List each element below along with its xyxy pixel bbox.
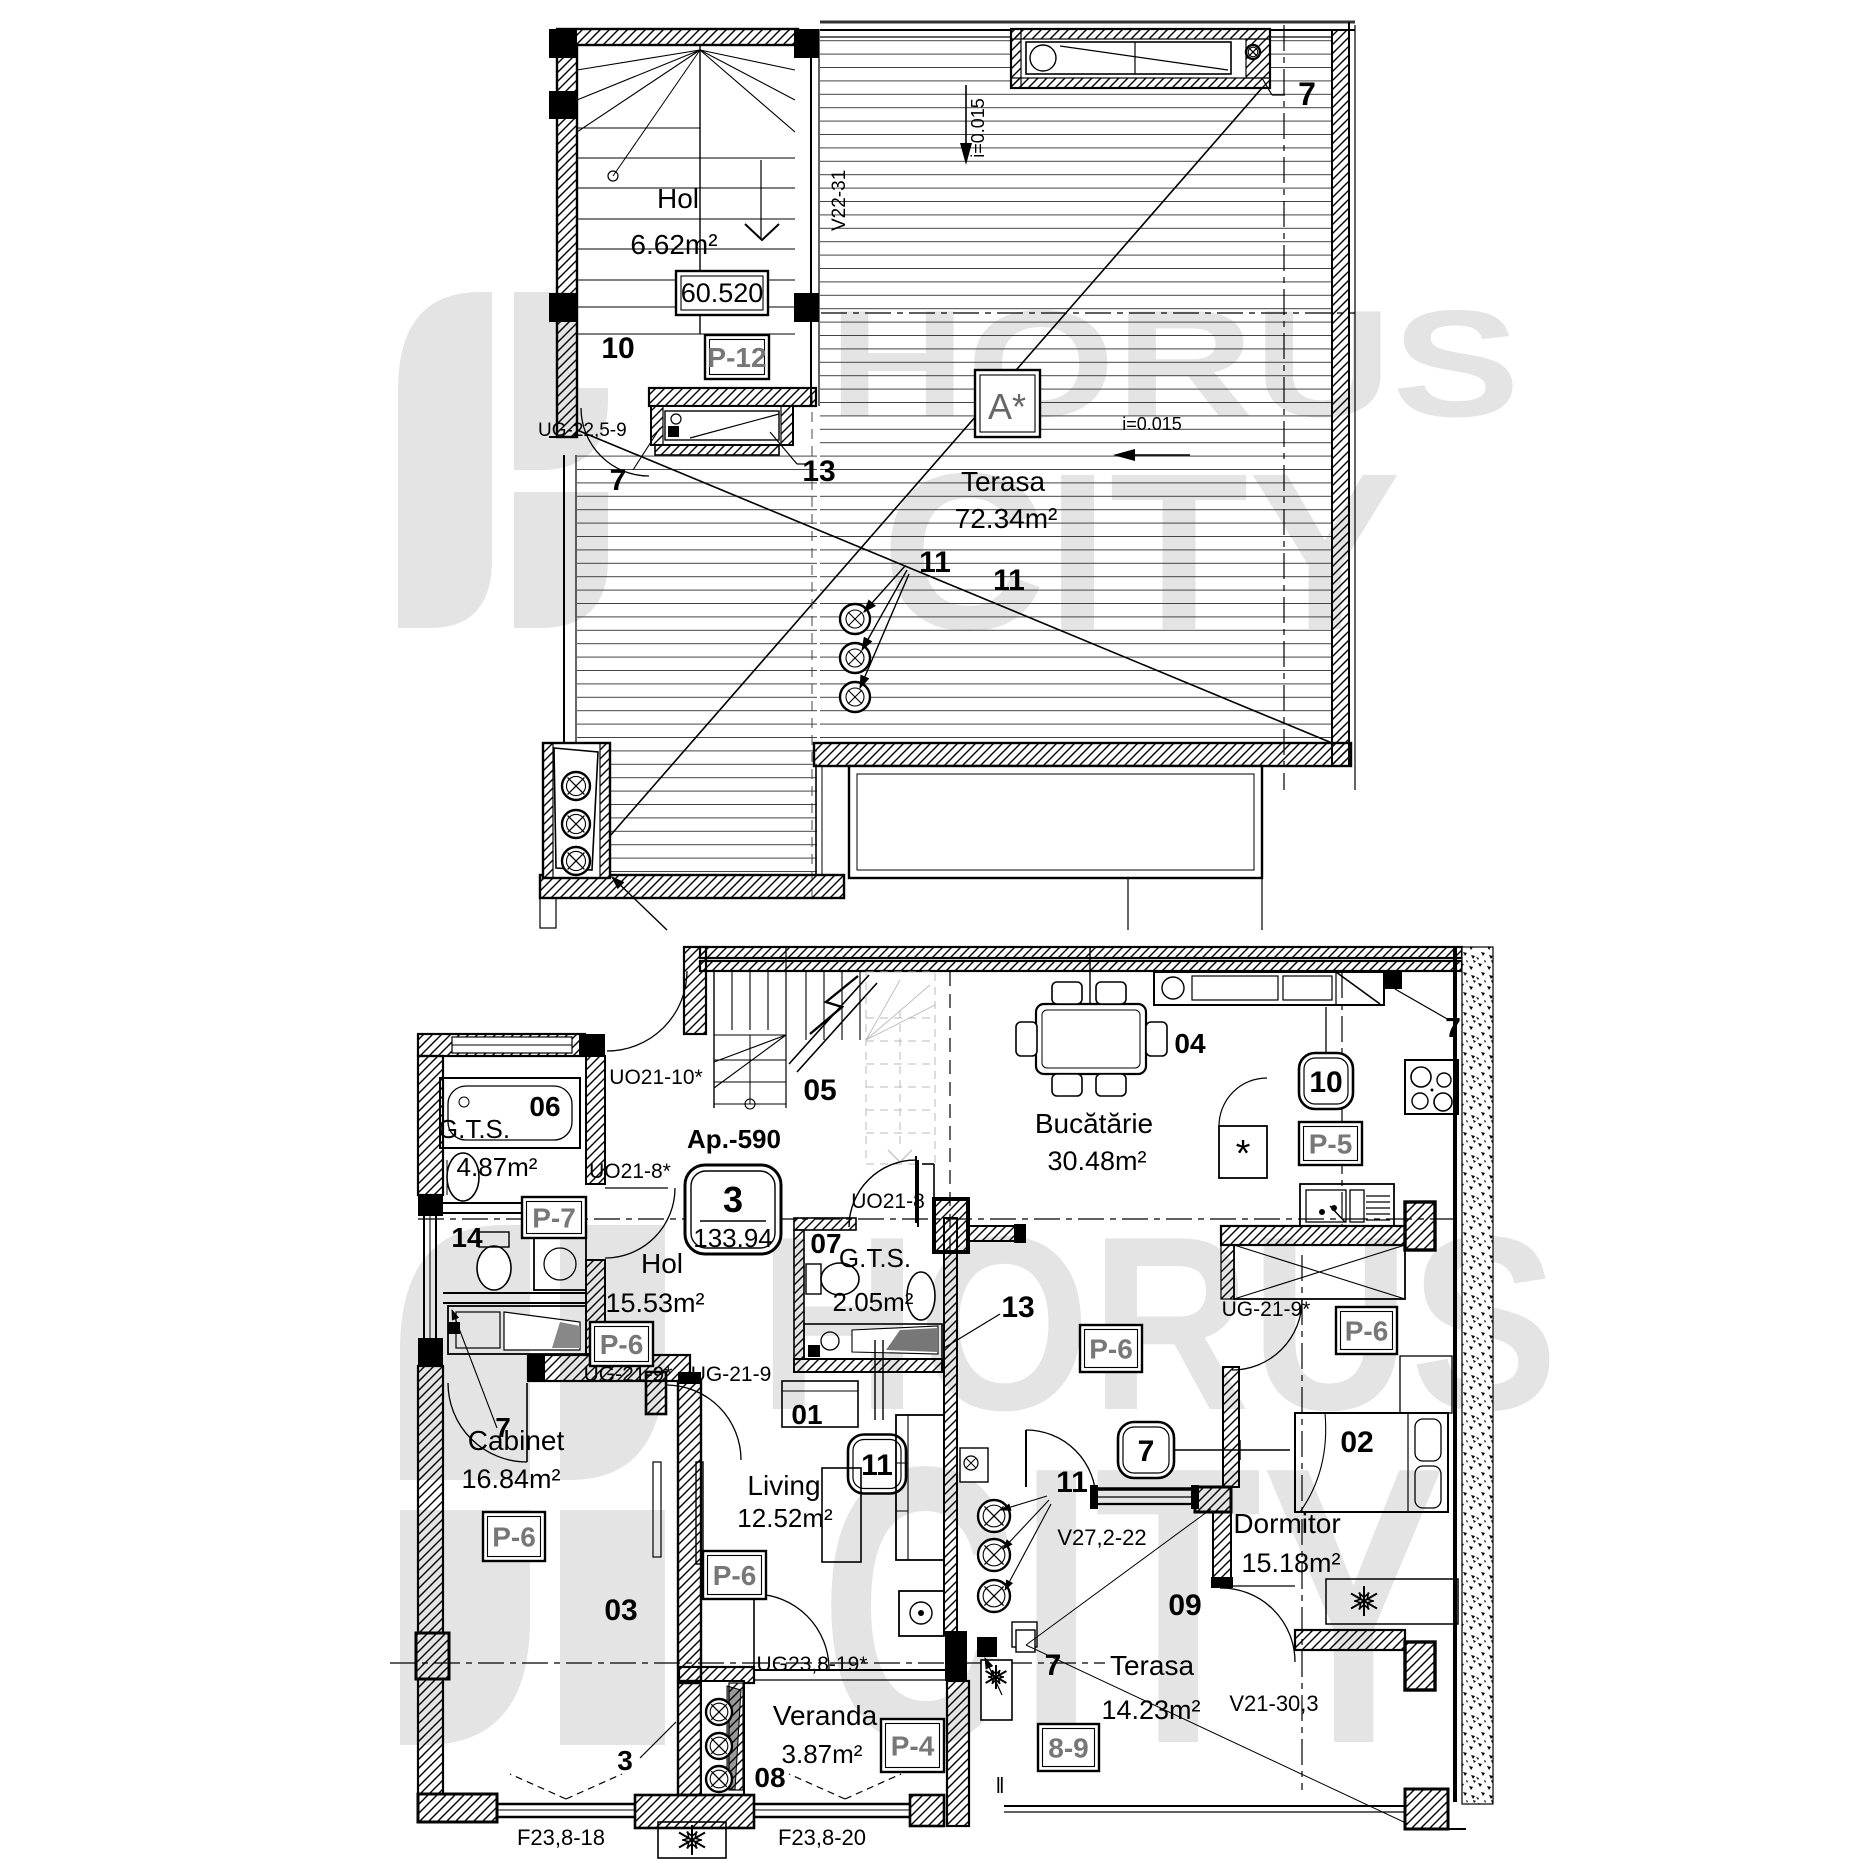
svg-text:Terasa: Terasa <box>961 466 1045 497</box>
svg-text:A*: A* <box>988 386 1026 427</box>
svg-text:01: 01 <box>791 1399 822 1430</box>
svg-text:F23,8-20: F23,8-20 <box>778 1825 866 1850</box>
svg-text:UG-22,5-9: UG-22,5-9 <box>538 420 627 441</box>
svg-text:P-6: P-6 <box>1345 1316 1389 1347</box>
svg-text:P-6: P-6 <box>713 1560 757 1591</box>
svg-text:Terasa: Terasa <box>1110 1650 1194 1681</box>
svg-text:P-6: P-6 <box>492 1522 536 1553</box>
svg-text:8-9: 8-9 <box>1048 1733 1088 1764</box>
svg-text:P-12: P-12 <box>707 342 766 373</box>
svg-text:13: 13 <box>802 455 835 488</box>
svg-text:‖: ‖ <box>995 1773 1004 1798</box>
svg-text:11: 11 <box>1056 1466 1088 1499</box>
svg-text:7: 7 <box>1298 76 1316 112</box>
svg-text:14.23m²: 14.23m² <box>1101 1695 1200 1725</box>
svg-text:3: 3 <box>723 1179 743 1220</box>
svg-text:F23,8-18: F23,8-18 <box>517 1825 605 1850</box>
svg-text:G.T.S.: G.T.S. <box>438 1114 510 1144</box>
svg-text:*: * <box>1236 1133 1251 1175</box>
svg-text:11: 11 <box>861 1449 893 1482</box>
svg-text:11: 11 <box>919 546 951 579</box>
svg-text:Hol: Hol <box>657 183 699 214</box>
svg-text:Hol: Hol <box>641 1248 683 1279</box>
svg-text:133.94: 133.94 <box>693 1223 773 1253</box>
svg-text:16.84m²: 16.84m² <box>461 1464 560 1494</box>
svg-text:12.52m²: 12.52m² <box>737 1503 833 1533</box>
svg-text:UG23,8-19*: UG23,8-19* <box>757 1653 868 1676</box>
svg-text:3: 3 <box>617 1745 633 1776</box>
svg-text:i=0.015: i=0.015 <box>1122 414 1182 434</box>
svg-text:Ap.-590: Ap.-590 <box>687 1124 781 1154</box>
svg-text:7: 7 <box>610 464 627 497</box>
svg-text:4.87m²: 4.87m² <box>457 1152 538 1182</box>
svg-text:UG-21-9*: UG-21-9* <box>1222 1298 1311 1321</box>
svg-text:02: 02 <box>1340 1426 1373 1459</box>
svg-text:3.87m²: 3.87m² <box>782 1739 863 1769</box>
svg-text:07: 07 <box>810 1228 841 1259</box>
svg-text:13: 13 <box>1001 1291 1034 1324</box>
svg-text:60.520: 60.520 <box>681 278 764 308</box>
svg-text:11: 11 <box>993 564 1025 597</box>
svg-text:Bucătărie: Bucătărie <box>1035 1108 1153 1139</box>
svg-text:V27,2-22: V27,2-22 <box>1057 1525 1146 1550</box>
svg-text:Veranda: Veranda <box>773 1700 878 1731</box>
svg-text:7: 7 <box>1445 1012 1461 1043</box>
svg-text:7: 7 <box>1045 1649 1062 1682</box>
svg-text:7: 7 <box>1138 1435 1155 1468</box>
svg-text:10: 10 <box>1309 1066 1342 1099</box>
svg-text:P-4: P-4 <box>891 1731 935 1762</box>
svg-text:72.34m²: 72.34m² <box>955 503 1058 534</box>
svg-text:03: 03 <box>604 1594 637 1627</box>
svg-text:10: 10 <box>601 332 634 365</box>
svg-text:Living: Living <box>747 1470 820 1501</box>
svg-text:05: 05 <box>803 1074 836 1107</box>
svg-text:06: 06 <box>529 1091 560 1122</box>
svg-text:30.48m²: 30.48m² <box>1047 1146 1146 1176</box>
svg-text:V21-30,3: V21-30,3 <box>1229 1691 1318 1716</box>
svg-text:Cabinet: Cabinet <box>468 1425 565 1456</box>
svg-text:04: 04 <box>1174 1028 1206 1059</box>
svg-text:V22-31: V22-31 <box>829 170 850 231</box>
svg-text:09: 09 <box>1168 1589 1201 1622</box>
svg-text:i=0.015: i=0.015 <box>968 98 988 158</box>
svg-text:G.T.S.: G.T.S. <box>839 1243 911 1273</box>
svg-text:UG-21-9: UG-21-9 <box>691 1363 772 1386</box>
svg-text:P-7: P-7 <box>532 1203 576 1234</box>
svg-text:15.53m²: 15.53m² <box>605 1288 704 1318</box>
svg-text:15.18m²: 15.18m² <box>1241 1548 1340 1578</box>
svg-text:P-6: P-6 <box>1089 1334 1133 1365</box>
svg-text:UO21-8: UO21-8 <box>851 1190 925 1213</box>
svg-text:14: 14 <box>451 1222 483 1253</box>
svg-text:6.62m²: 6.62m² <box>630 229 717 260</box>
svg-text:P-5: P-5 <box>1309 1129 1353 1160</box>
svg-text:UO21-10*: UO21-10* <box>609 1066 702 1089</box>
svg-text:2.05m²: 2.05m² <box>833 1287 914 1317</box>
svg-text:UO21-8*: UO21-8* <box>589 1160 671 1183</box>
svg-text:08: 08 <box>754 1762 785 1793</box>
svg-text:P-6: P-6 <box>600 1329 644 1360</box>
